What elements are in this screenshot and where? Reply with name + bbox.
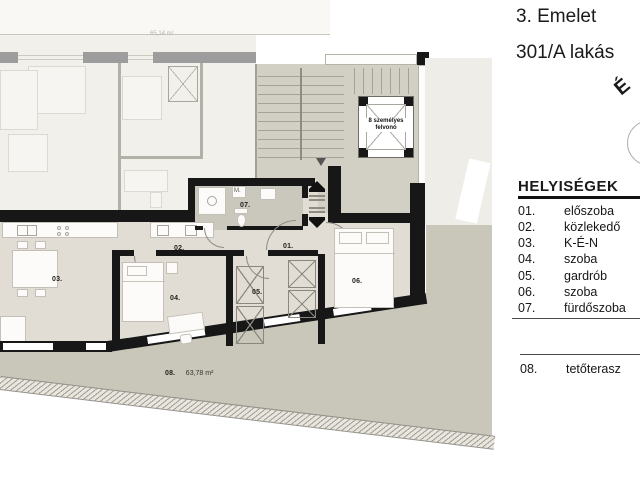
elevator-label: 8 személyes felvonó	[364, 118, 408, 132]
stair-entry-marker	[306, 181, 328, 231]
legend-item-name: előszoba	[564, 204, 614, 218]
legend-item-name: közlekedő	[564, 220, 620, 234]
floor-plan-sheet: 65,14 m²	[0, 0, 640, 480]
legend-item-num: 04.	[518, 252, 564, 266]
window	[18, 55, 83, 56]
fine-print-line	[309, 207, 325, 209]
wall	[112, 256, 120, 344]
arrow-down-icon	[309, 220, 325, 228]
legend-item-name: tetőterasz	[566, 362, 621, 376]
room-label-05: 05.	[252, 289, 262, 296]
legend-divider	[512, 318, 640, 319]
legend-item-terrace: 08.tetőterasz	[520, 362, 621, 376]
wall	[118, 156, 203, 159]
fine-print-line	[309, 211, 325, 213]
window	[128, 55, 153, 56]
blanket-line	[123, 281, 165, 282]
room-label-01: 01.	[283, 243, 293, 250]
wardrobe	[288, 260, 316, 288]
washbasin	[260, 188, 276, 200]
stair-window	[325, 54, 417, 65]
chair	[17, 289, 28, 297]
terrace-label: 08. 63,78 m²	[165, 362, 213, 380]
legend-item-num: 02.	[518, 220, 564, 234]
wardrobe	[288, 290, 316, 318]
chair	[35, 241, 46, 249]
stair-treads	[346, 68, 416, 94]
fine-print-line	[309, 199, 325, 201]
wall	[0, 341, 112, 352]
legend-item: 05.gardrób	[518, 269, 607, 283]
wall	[118, 63, 121, 210]
room-label-07: 07.	[240, 202, 250, 209]
legend-item-name: szoba	[564, 252, 597, 266]
wall	[0, 210, 190, 222]
neighbor-balcony	[0, 0, 330, 35]
legend-item-num: 05.	[518, 269, 564, 283]
stair-treads	[302, 68, 344, 160]
wall	[0, 52, 18, 63]
cooktop-burner	[65, 232, 69, 236]
legend-item: 06.szoba	[518, 285, 597, 299]
wall	[112, 250, 134, 256]
wardrobe	[236, 306, 264, 344]
wall	[153, 52, 256, 63]
cooktop-burner	[57, 232, 61, 236]
wall	[188, 178, 315, 186]
pillow	[127, 266, 147, 276]
wall	[341, 213, 418, 223]
legend-heading: HELYISÉGEK	[518, 178, 618, 195]
wall	[410, 183, 425, 302]
north-arrow-icon: É	[610, 74, 635, 100]
legend-item: 07.fürdőszoba	[518, 301, 626, 315]
shower	[198, 187, 226, 215]
legend-heading-rule	[518, 196, 640, 199]
fine-print-line	[309, 195, 325, 197]
legend-item-num: 07.	[518, 301, 564, 315]
kitchen-counter	[2, 222, 118, 238]
wall	[328, 166, 341, 223]
north-compass-circle	[627, 120, 640, 166]
pillow	[339, 232, 362, 244]
room-label-02: 02.	[174, 245, 184, 252]
legend-item: 03.K-É-N	[518, 236, 598, 250]
nightstand	[166, 262, 178, 274]
neighbor-area-label: 65,14 m²	[150, 31, 174, 37]
wall	[156, 250, 244, 256]
chair	[179, 333, 192, 345]
pillow	[366, 232, 389, 244]
sink-divider	[27, 225, 28, 236]
stair-treads	[258, 68, 300, 160]
neighbor-table	[8, 134, 48, 172]
chair	[35, 289, 46, 297]
window	[86, 343, 106, 350]
wall	[268, 250, 318, 256]
chair	[17, 241, 28, 249]
neighbor-sofa	[0, 70, 38, 130]
bed	[122, 262, 164, 322]
legend-item-num: 08.	[520, 362, 566, 376]
stair-divider	[300, 68, 302, 160]
terrace-label-num: 08.	[165, 370, 175, 377]
legend-item-name: gardrób	[564, 269, 607, 283]
legend-item-num: 06.	[518, 285, 564, 299]
neighbor-toilet	[150, 192, 162, 208]
legend-item-name: K-É-N	[564, 236, 598, 250]
legend-item: 01.előszoba	[518, 204, 614, 218]
room-label-06: 06.	[352, 278, 362, 285]
wardrobe	[236, 266, 264, 304]
stair-direction-arrow	[316, 158, 326, 166]
legend-item-num: 01.	[518, 204, 564, 218]
neighbor-wardrobe	[168, 66, 198, 102]
wall	[195, 226, 203, 230]
cooktop-burner	[57, 226, 61, 230]
washing-machine-label: M.	[234, 188, 241, 194]
terrace-label-area: 63,78 m²	[186, 370, 214, 377]
wall	[200, 63, 203, 158]
shower-drain	[207, 196, 217, 206]
wall	[318, 254, 325, 344]
window	[128, 59, 153, 60]
cooktop-burner	[65, 226, 69, 230]
apartment-title: 301/A lakás	[516, 42, 614, 64]
legend-item: 04.szoba	[518, 252, 597, 266]
legend-item-num: 03.	[518, 236, 564, 250]
legend-item: 02.közlekedő	[518, 220, 620, 234]
blanket-line	[335, 253, 395, 254]
wall	[226, 256, 233, 346]
elevator: 8 személyes felvonó	[358, 96, 414, 158]
page-title: 3. Emelet	[516, 6, 596, 28]
window	[3, 343, 53, 350]
window	[18, 59, 83, 60]
arrow-up-icon	[309, 181, 325, 189]
neighbor-bed	[122, 76, 162, 120]
floor-plan: 65,14 m²	[0, 0, 505, 480]
legend-divider	[520, 354, 640, 355]
legend-item-name: fürdőszoba	[564, 301, 626, 315]
wall	[83, 52, 128, 63]
room-label-04: 04.	[170, 295, 180, 302]
bed	[334, 228, 394, 308]
oven	[157, 225, 169, 236]
neighbor-bathtub	[124, 170, 168, 192]
legend-item-name: szoba	[564, 285, 597, 299]
arrow-bar	[309, 189, 325, 192]
room-label-03: 03.	[52, 276, 62, 283]
